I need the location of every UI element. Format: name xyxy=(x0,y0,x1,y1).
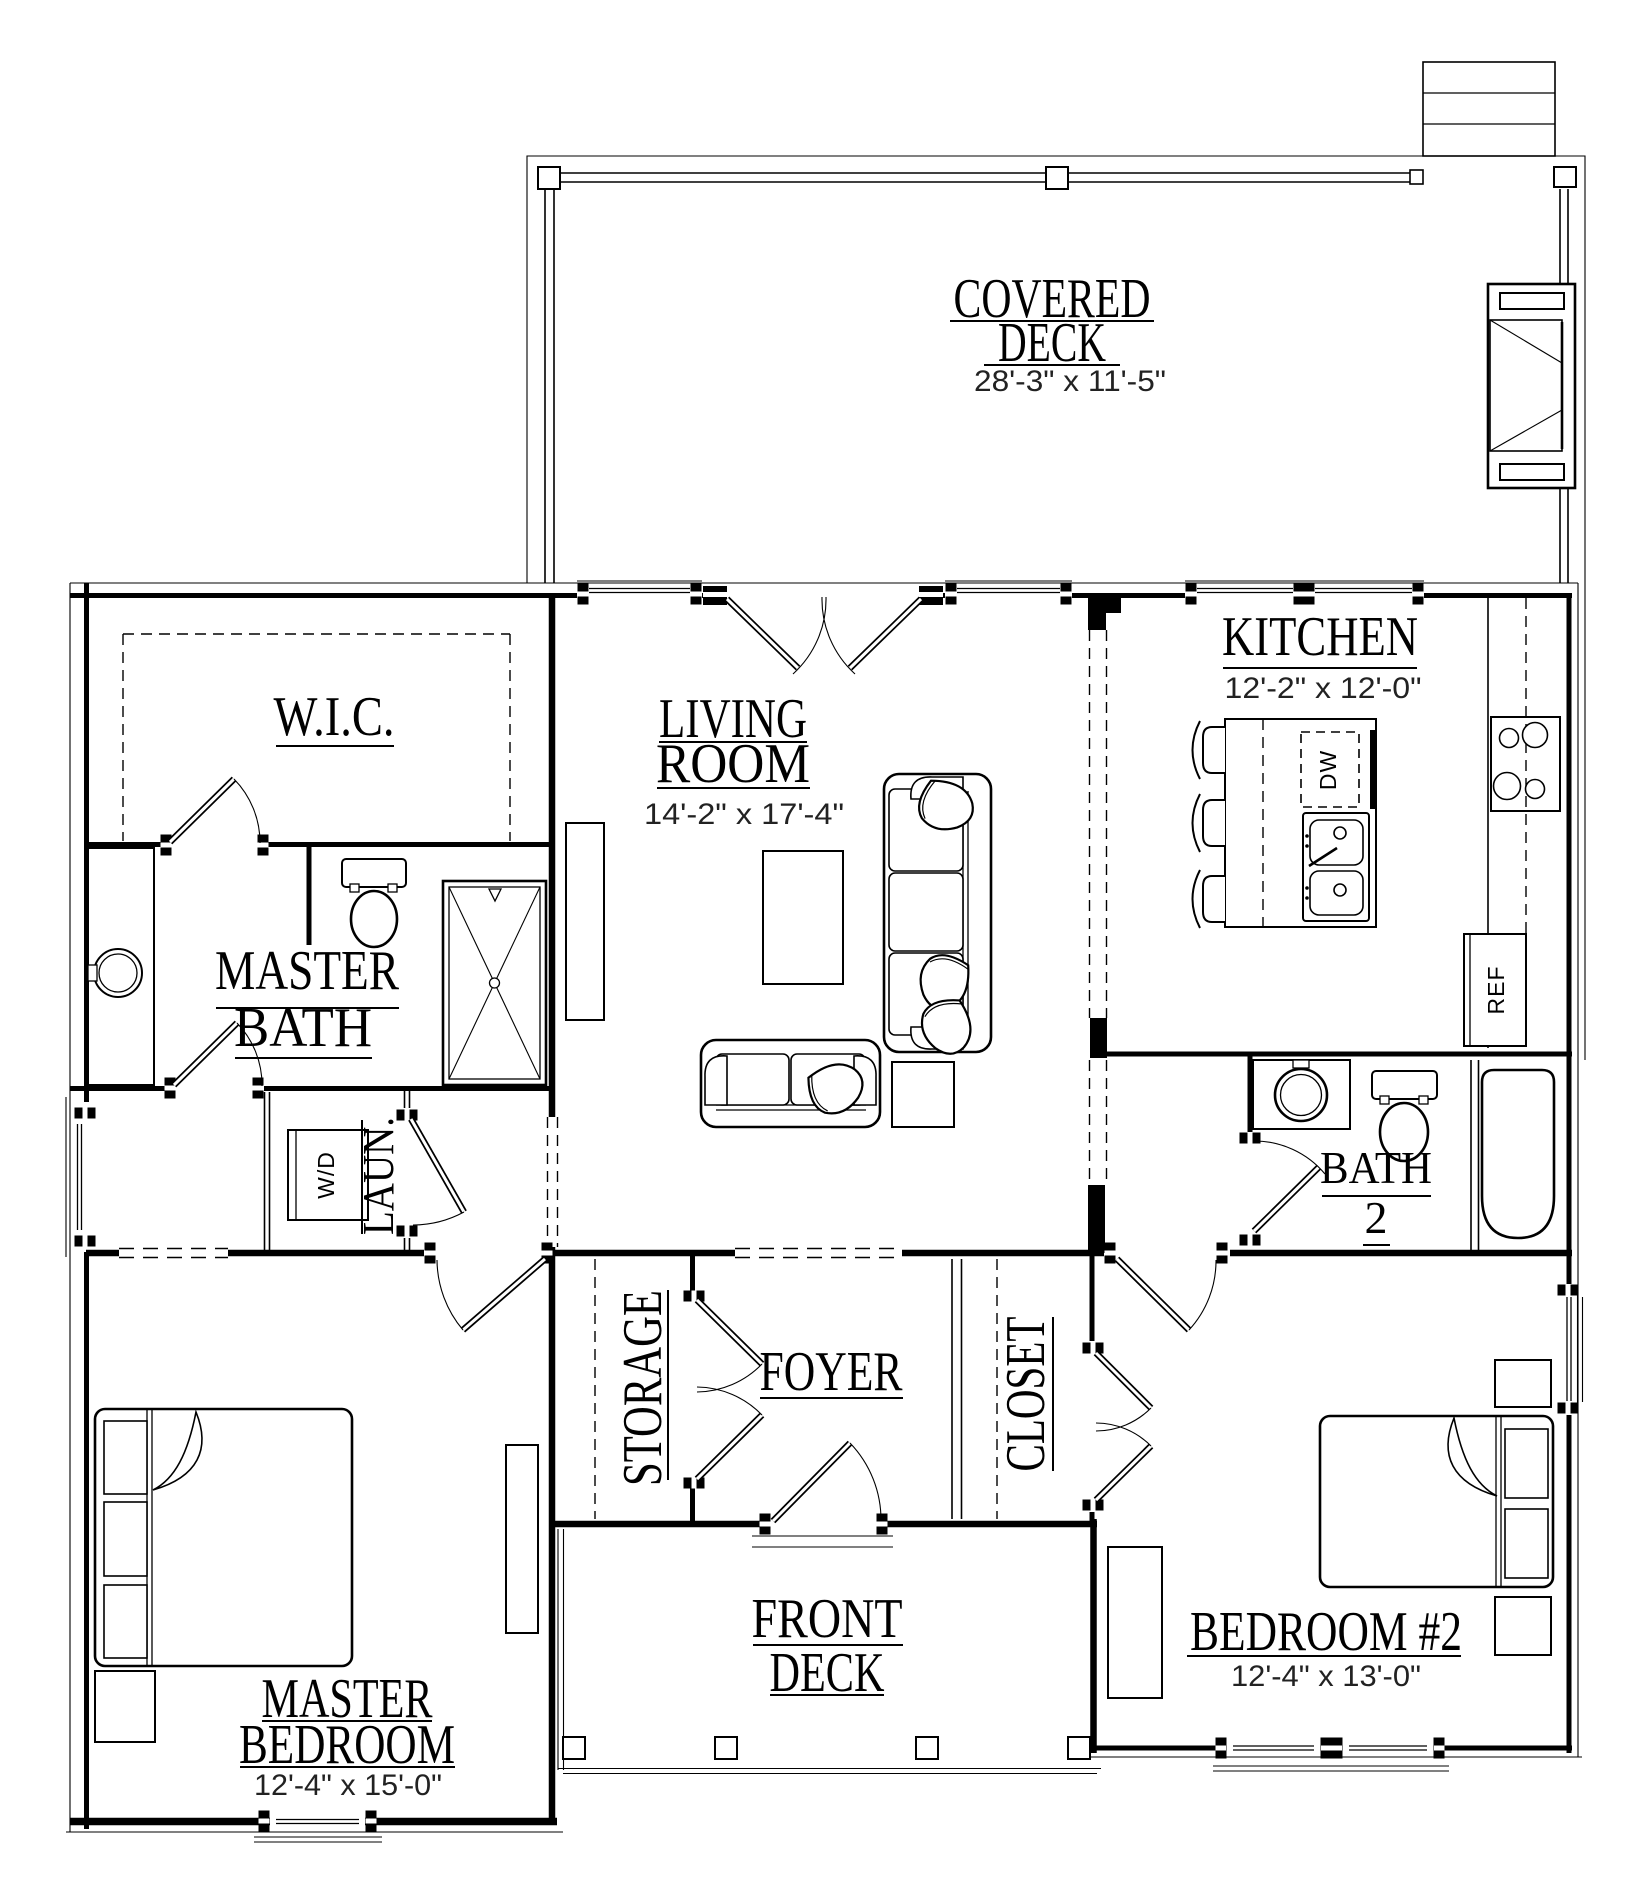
svg-text:ROOM: ROOM xyxy=(656,733,810,795)
svg-text:REF: REF xyxy=(1483,966,1509,1015)
svg-text:12'-2" x 12'-0": 12'-2" x 12'-0" xyxy=(1225,672,1422,705)
svg-text:W/D: W/D xyxy=(313,1151,339,1199)
svg-text:STORAGE: STORAGE xyxy=(612,1290,674,1486)
svg-text:BATH: BATH xyxy=(1320,1142,1432,1193)
svg-text:DW: DW xyxy=(1315,750,1341,790)
svg-text:FOYER: FOYER xyxy=(760,1341,903,1403)
svg-text:BATH: BATH xyxy=(234,997,372,1059)
svg-text:FRONT: FRONT xyxy=(752,1588,903,1650)
svg-text:BEDROOM #2: BEDROOM #2 xyxy=(1190,1601,1462,1663)
svg-text:12'-4" x 13'-0": 12'-4" x 13'-0" xyxy=(1231,1660,1421,1693)
svg-text:14'-2" x 17'-4": 14'-2" x 17'-4" xyxy=(644,798,844,831)
svg-text:2: 2 xyxy=(1365,1192,1388,1243)
svg-text:W.I.C.: W.I.C. xyxy=(274,686,395,748)
svg-text:KITCHEN: KITCHEN xyxy=(1222,606,1418,668)
svg-text:28'-3" x 11'-5": 28'-3" x 11'-5" xyxy=(974,365,1166,398)
svg-text:MASTER: MASTER xyxy=(215,940,400,1002)
svg-text:12'-4" x 15'-0": 12'-4" x 15'-0" xyxy=(254,1769,442,1802)
svg-text:CLOSET: CLOSET xyxy=(995,1317,1057,1472)
